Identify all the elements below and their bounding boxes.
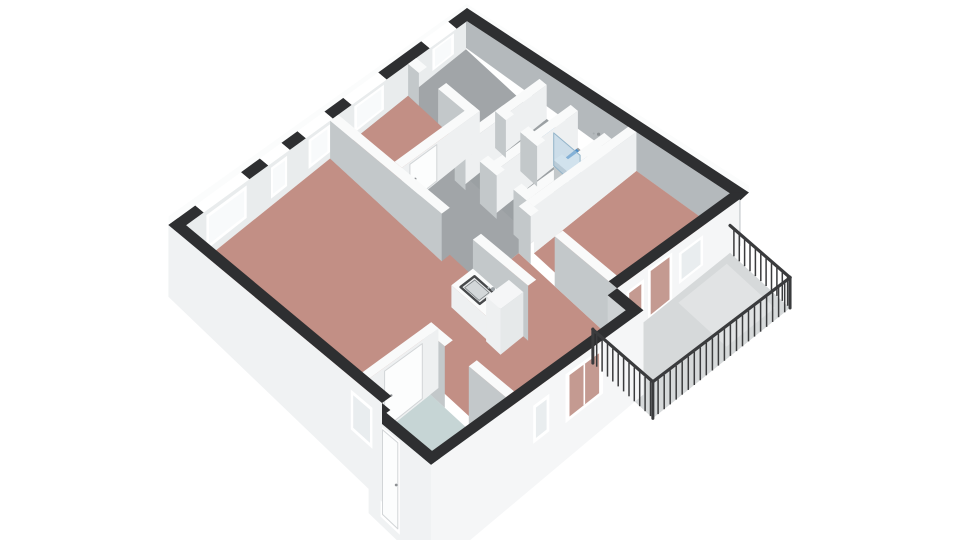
shower-head	[593, 133, 595, 135]
kitchen-window-mullion	[584, 364, 586, 406]
floorplan-canvas	[0, 0, 960, 540]
kitchen-faucet	[488, 287, 490, 289]
front-door-handle	[395, 484, 398, 487]
shower-head	[597, 133, 600, 136]
kitchen-faucet	[491, 287, 495, 291]
floorplan-3d-view	[0, 0, 960, 540]
front-door-leaf	[383, 430, 398, 529]
